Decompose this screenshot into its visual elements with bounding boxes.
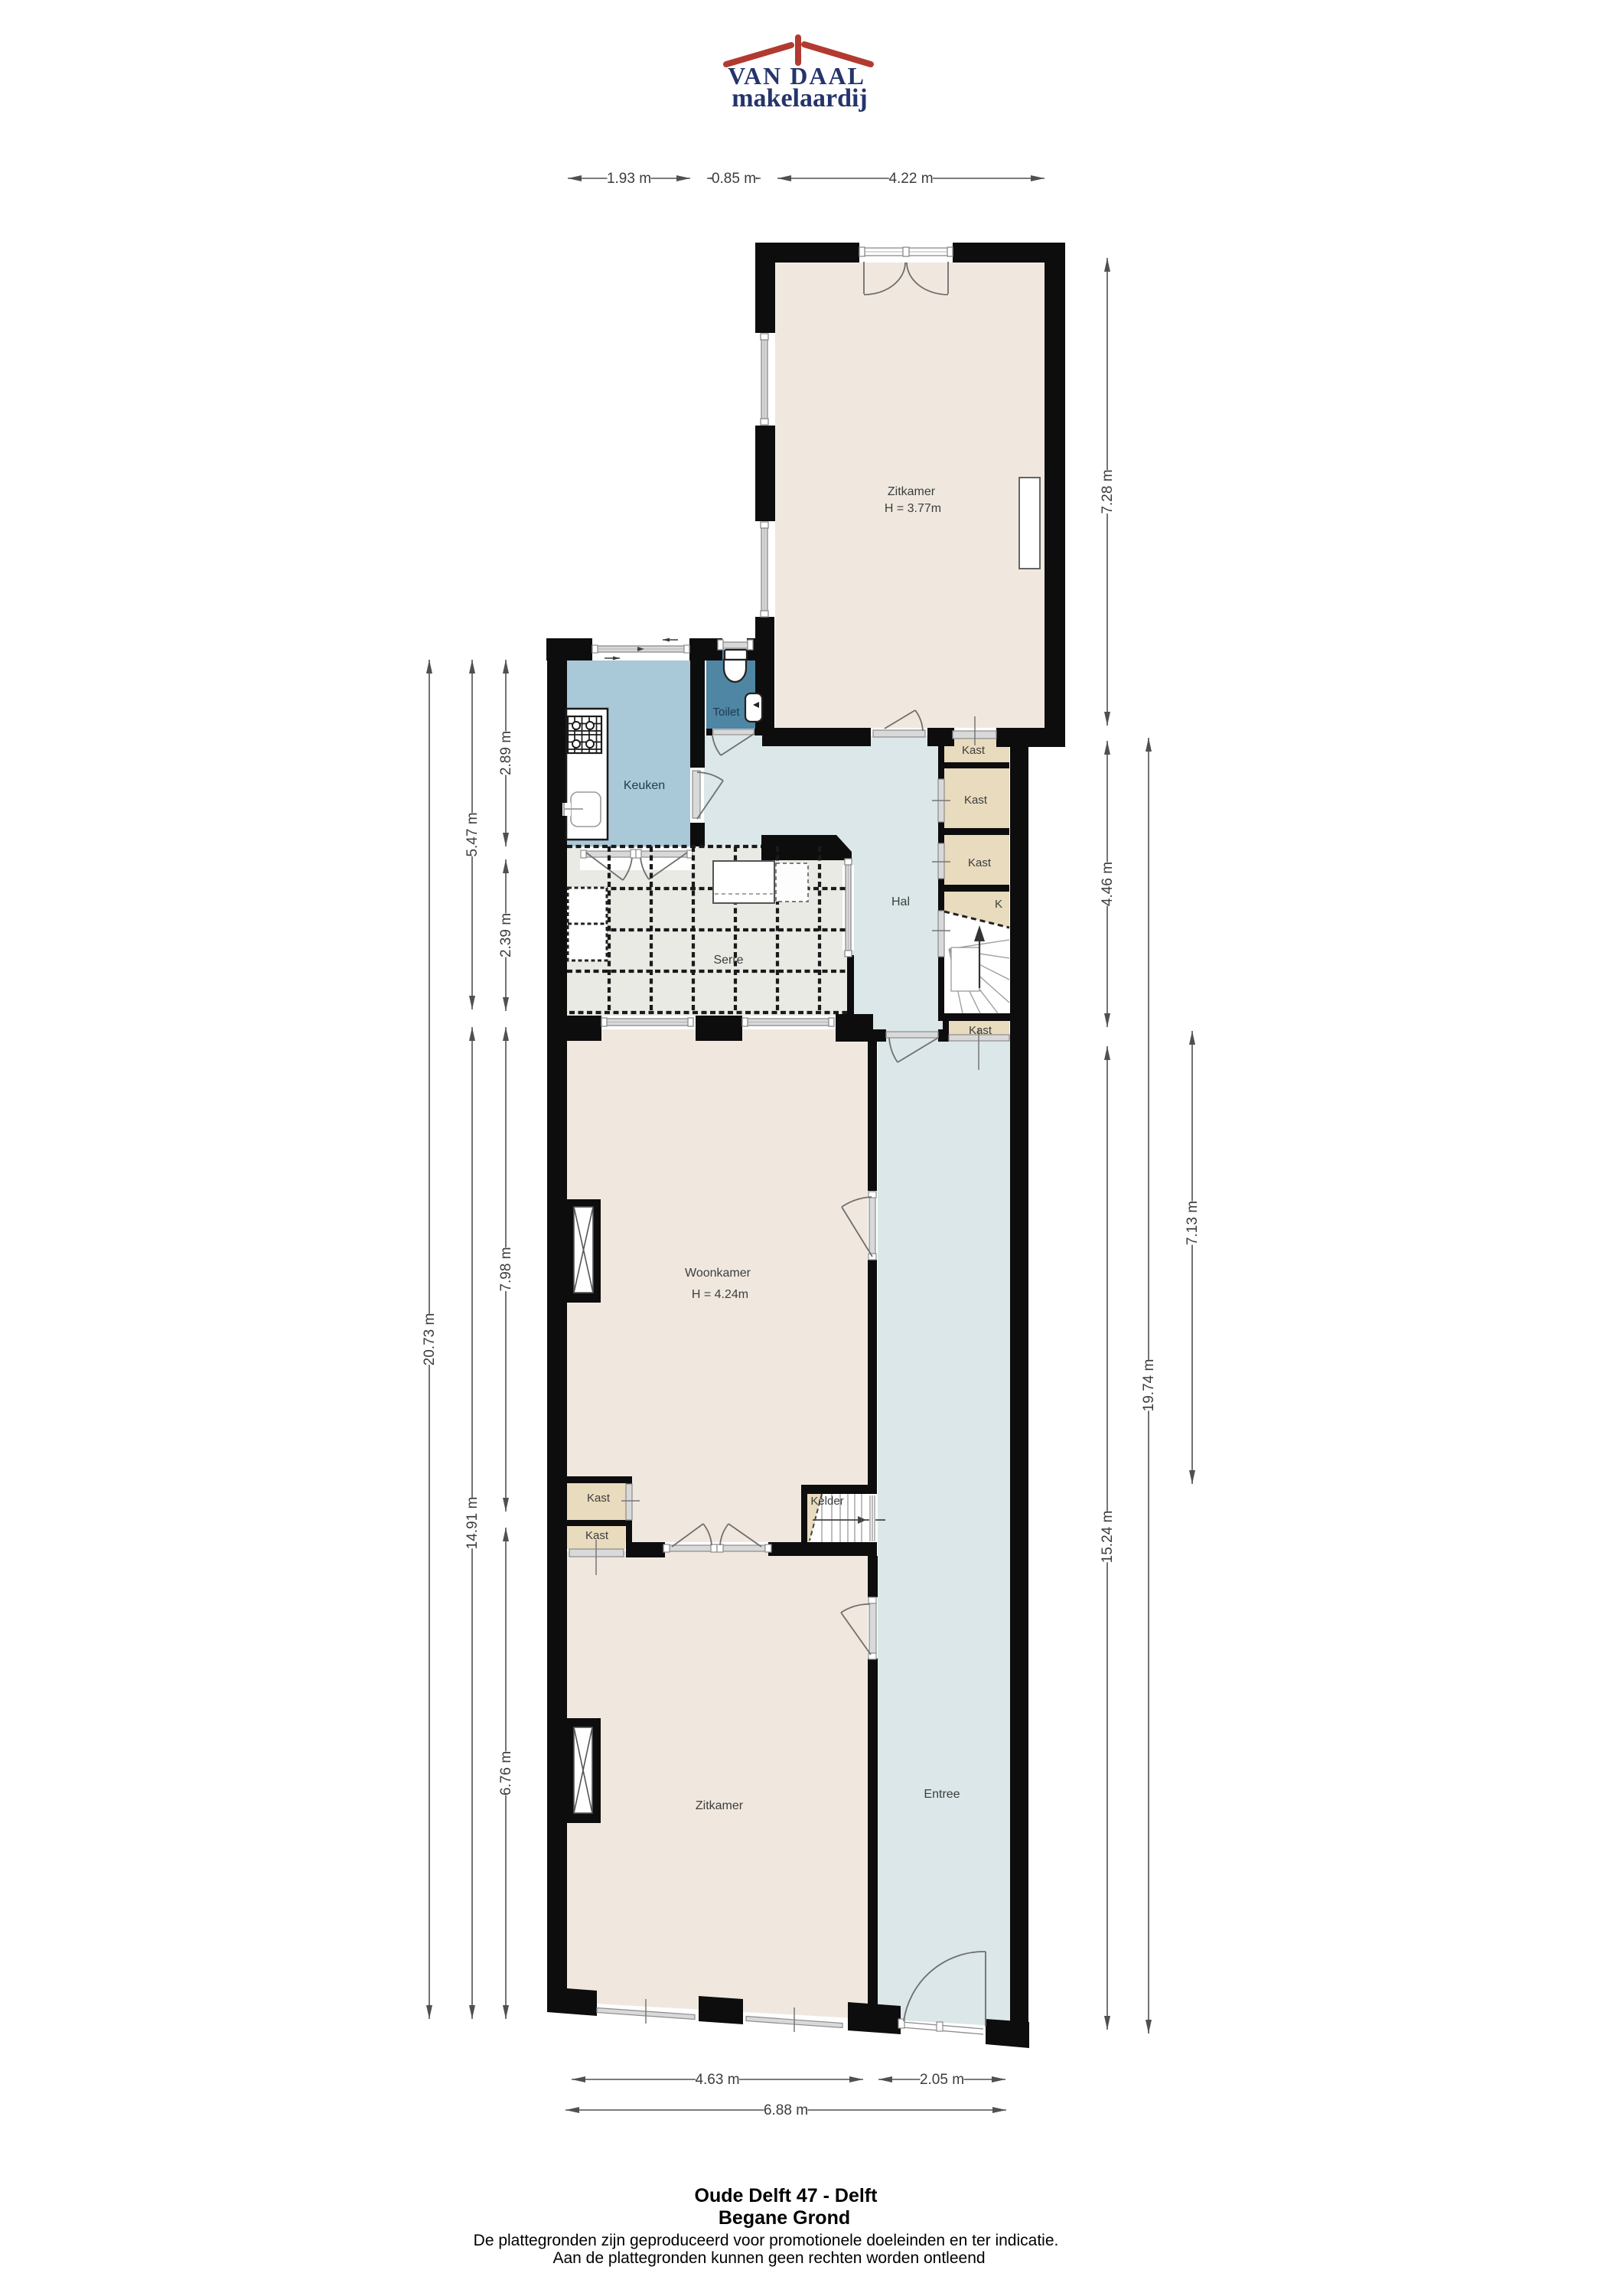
svg-text:Aan de plattegronden kunnen ge: Aan de plattegronden kunnen geen rechten…	[552, 2249, 985, 2267]
svg-text:De plattegronden zijn geproduc: De plattegronden zijn geproduceerd voor …	[474, 2232, 1059, 2249]
svg-text:Kast: Kast	[969, 1024, 992, 1037]
svg-text:K: K	[995, 898, 1002, 911]
svg-text:Hal: Hal	[891, 895, 910, 908]
svg-text:makelaardij: makelaardij	[732, 84, 868, 113]
svg-text:Begane Grond: Begane Grond	[719, 2207, 850, 2229]
svg-text:H = 3.77m: H = 3.77m	[885, 502, 941, 515]
svg-text:20.73 m: 20.73 m	[422, 1313, 438, 1366]
svg-text:Kast: Kast	[968, 856, 992, 869]
svg-text:19.74 m: 19.74 m	[1141, 1359, 1157, 1412]
svg-text:2.89 m: 2.89 m	[498, 731, 514, 775]
svg-text:Kast: Kast	[585, 1529, 609, 1542]
svg-text:Kast: Kast	[964, 794, 988, 807]
svg-text:Serre: Serre	[713, 954, 743, 967]
svg-text:Toilet: Toilet	[712, 706, 740, 719]
svg-text:Kast: Kast	[962, 744, 986, 757]
svg-text:7.98 m: 7.98 m	[498, 1247, 514, 1291]
svg-text:Zitkamer: Zitkamer	[696, 1799, 744, 1812]
svg-text:7.13 m: 7.13 m	[1185, 1201, 1201, 1245]
svg-text:Kelder: Kelder	[810, 1495, 843, 1508]
svg-text:6.76 m: 6.76 m	[498, 1751, 514, 1795]
svg-text:6.88 m: 6.88 m	[764, 2102, 808, 2118]
svg-text:Oude Delft 47 - Delft: Oude Delft 47 - Delft	[695, 2185, 878, 2206]
svg-text:2.39 m: 2.39 m	[498, 913, 514, 957]
svg-text:4.63 m: 4.63 m	[695, 2072, 739, 2088]
svg-text:0.85 m: 0.85 m	[712, 171, 756, 187]
svg-text:Woonkamer: Woonkamer	[685, 1267, 751, 1280]
svg-text:Keuken: Keuken	[624, 779, 665, 792]
svg-text:5.47 m: 5.47 m	[464, 812, 481, 856]
svg-text:7.28 m: 7.28 m	[1100, 469, 1116, 514]
svg-text:2.05 m: 2.05 m	[920, 2072, 964, 2088]
svg-text:Kast: Kast	[587, 1492, 611, 1505]
svg-text:4.22 m: 4.22 m	[888, 171, 933, 187]
svg-text:14.91 m: 14.91 m	[464, 1497, 481, 1550]
svg-text:4.46 m: 4.46 m	[1100, 862, 1116, 906]
svg-text:15.24 m: 15.24 m	[1100, 1511, 1116, 1564]
svg-text:H = 4.24m: H = 4.24m	[692, 1288, 748, 1301]
svg-text:Entree: Entree	[924, 1788, 960, 1801]
svg-text:1.93 m: 1.93 m	[607, 171, 651, 187]
svg-text:Zitkamer: Zitkamer	[888, 485, 936, 498]
